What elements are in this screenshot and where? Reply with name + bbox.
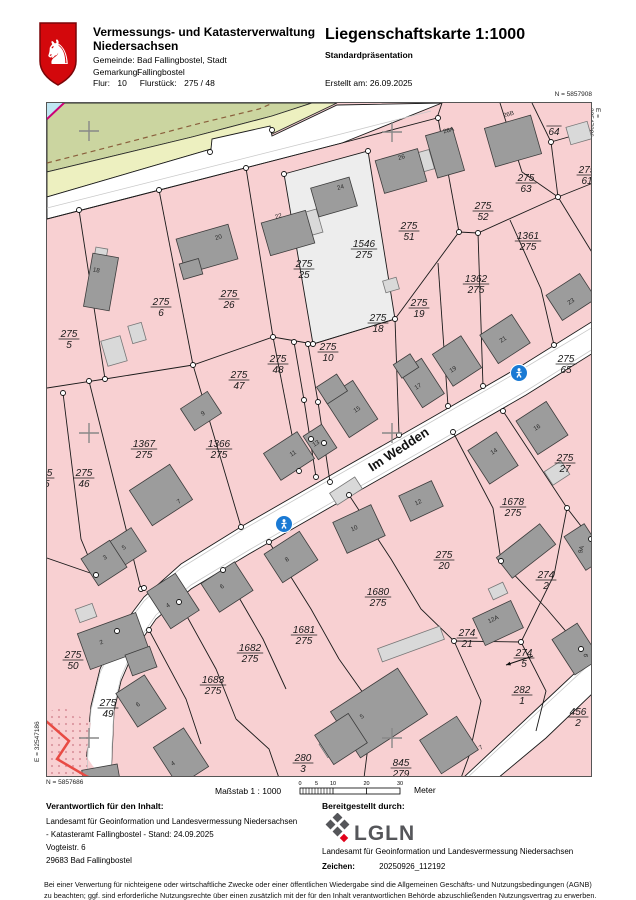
boundary-point bbox=[77, 208, 82, 213]
svg-text:274: 274 bbox=[537, 570, 555, 581]
boundary-point bbox=[501, 409, 506, 414]
scale-text: Maßstab 1 : 1000 bbox=[215, 786, 281, 796]
svg-text:275: 275 bbox=[474, 201, 492, 212]
svg-text:♞: ♞ bbox=[43, 33, 73, 73]
building bbox=[84, 253, 119, 311]
svg-text:275: 275 bbox=[152, 297, 170, 308]
parcel-label: 1361275 bbox=[515, 231, 541, 253]
boundary-point bbox=[393, 317, 398, 322]
map-canvas: 2755275627526275251546275275512755227563… bbox=[47, 103, 592, 777]
parcel-label: 845279 bbox=[391, 758, 412, 777]
boundary-point bbox=[302, 398, 307, 403]
parcel-label: 2803 bbox=[293, 753, 314, 775]
boundary-point bbox=[147, 628, 152, 633]
boundary-point bbox=[556, 195, 561, 200]
parcel-label: 1362275 bbox=[463, 274, 489, 296]
parcel-label: 2742 bbox=[536, 570, 557, 592]
svg-text:51: 51 bbox=[403, 232, 414, 243]
svg-text:275: 275 bbox=[220, 289, 238, 300]
svg-text:275: 275 bbox=[557, 354, 575, 365]
svg-text:19: 19 bbox=[413, 309, 425, 320]
boundary-point bbox=[177, 600, 182, 605]
boundary-point bbox=[322, 441, 327, 446]
svg-text:275: 275 bbox=[295, 259, 313, 270]
building bbox=[129, 464, 192, 525]
boundary-point bbox=[87, 379, 92, 384]
svg-text:275: 275 bbox=[369, 598, 387, 609]
svg-text:26: 26 bbox=[222, 300, 235, 311]
svg-text:10: 10 bbox=[322, 353, 334, 364]
provided-by-heading: Bereitgestellt durch: bbox=[322, 801, 405, 811]
svg-text:275: 275 bbox=[230, 370, 248, 381]
parcel-label: 27552 bbox=[473, 201, 494, 223]
svg-text:20: 20 bbox=[363, 781, 369, 787]
parcel-boundary bbox=[246, 168, 273, 337]
provider-line: Landesamt für Geoinformation und Landesv… bbox=[322, 845, 573, 858]
svg-text:18: 18 bbox=[372, 324, 384, 335]
svg-text:275: 275 bbox=[556, 453, 574, 464]
svg-text:30: 30 bbox=[397, 781, 403, 787]
svg-text:275: 275 bbox=[210, 450, 228, 461]
building bbox=[473, 601, 524, 646]
parcel-label: 27526 bbox=[219, 289, 240, 311]
boundary-point bbox=[157, 188, 162, 193]
boundary-point bbox=[270, 128, 275, 133]
coord-n-top: N = 5857908 bbox=[555, 91, 592, 98]
svg-text:275: 275 bbox=[355, 250, 373, 261]
svg-text:280: 280 bbox=[294, 753, 312, 764]
svg-text:65: 65 bbox=[560, 365, 572, 376]
boundary-point bbox=[297, 469, 302, 474]
building bbox=[153, 728, 208, 777]
zeichen-row: Zeichen: 20250926_112192 bbox=[322, 860, 445, 873]
svg-text:1362: 1362 bbox=[465, 274, 488, 285]
flur-label: Flur: bbox=[93, 78, 115, 90]
gemarkung-value: Fallingbostel bbox=[137, 67, 185, 77]
boundary-point bbox=[476, 231, 481, 236]
parcel-label: 27510 bbox=[318, 342, 339, 364]
scale-bar-graphic: 05102030 bbox=[296, 778, 411, 798]
svg-text:275: 275 bbox=[241, 654, 259, 665]
building bbox=[552, 623, 592, 675]
parcel-label: 2756 bbox=[151, 297, 172, 319]
building bbox=[420, 716, 479, 774]
svg-text:45: 45 bbox=[47, 479, 50, 490]
parcel-label: 27551 bbox=[399, 221, 420, 243]
building bbox=[484, 115, 541, 167]
parcel-label: 27421 bbox=[457, 628, 478, 650]
svg-text:20: 20 bbox=[437, 561, 450, 572]
boundary-point bbox=[328, 480, 333, 485]
parcel-label: 27561 bbox=[577, 165, 592, 187]
parcel-boundary bbox=[308, 344, 330, 482]
svg-text:274: 274 bbox=[458, 628, 476, 639]
svg-text:52: 52 bbox=[477, 212, 489, 223]
zeichen-label: Zeichen: bbox=[322, 862, 355, 871]
parcel-label: 1367275 bbox=[131, 439, 157, 461]
parcel-label: 1681275 bbox=[291, 625, 317, 647]
liegenschaftskarte-page: ♞ Vermessungs- und Katasterverwaltung Ni… bbox=[0, 0, 636, 900]
lgln-wordmark: LGLN bbox=[354, 822, 415, 846]
coord-e-left: E = 32547186 bbox=[34, 721, 41, 762]
boundary-point bbox=[452, 639, 457, 644]
boundary-point bbox=[94, 573, 99, 578]
svg-text:1361: 1361 bbox=[517, 231, 539, 242]
svg-text:27: 27 bbox=[558, 464, 571, 475]
parcel-label: 27519 bbox=[409, 298, 430, 320]
boundary-point bbox=[191, 363, 196, 368]
boundary-point bbox=[519, 640, 524, 645]
flurstueck-label: Flurstück: bbox=[140, 78, 182, 90]
usage-disclaimer: Bei einer Verwertung für nichteigene ode… bbox=[44, 879, 600, 900]
responsible-heading: Verantwortlich für den Inhalt: bbox=[46, 801, 164, 811]
parcel-boundary bbox=[149, 630, 201, 744]
responsible-lines: Landesamt für Geoinformation und Landesv… bbox=[46, 815, 297, 867]
boundary-point bbox=[306, 342, 311, 347]
svg-text:1367: 1367 bbox=[133, 439, 156, 450]
svg-text:48: 48 bbox=[272, 365, 284, 376]
boundary-point bbox=[314, 475, 319, 480]
boundary-point bbox=[552, 343, 557, 348]
svg-text:1366: 1366 bbox=[208, 439, 231, 450]
svg-text:1546: 1546 bbox=[353, 239, 376, 250]
svg-text:275: 275 bbox=[319, 342, 337, 353]
pedestrian-sign-icon bbox=[276, 516, 293, 533]
flur-value: 10 bbox=[117, 78, 137, 90]
parcel-label: 27545 bbox=[47, 468, 54, 490]
building bbox=[333, 505, 385, 554]
boundary-point bbox=[347, 493, 352, 498]
svg-text:49: 49 bbox=[102, 709, 114, 720]
parcel-label: 27548 bbox=[268, 354, 289, 376]
house-number: 26B bbox=[502, 110, 515, 120]
pedestrian-sign-icon bbox=[511, 365, 528, 382]
svg-text:275: 275 bbox=[517, 173, 535, 184]
boundary-point bbox=[579, 647, 584, 652]
parcel-boundary bbox=[438, 263, 448, 406]
boundary-point bbox=[61, 391, 66, 396]
svg-text:2: 2 bbox=[574, 718, 581, 729]
svg-text:275: 275 bbox=[467, 285, 485, 296]
gemarkung-label: Gemarkung: bbox=[93, 67, 137, 79]
parcel-label: 27520 bbox=[434, 550, 455, 572]
zeichen-value: 20250926_112192 bbox=[379, 862, 445, 871]
parcel-label: 64 bbox=[546, 126, 561, 138]
svg-text:64: 64 bbox=[548, 127, 560, 138]
svg-text:275: 275 bbox=[504, 508, 522, 519]
svg-text:275: 275 bbox=[578, 165, 592, 176]
svg-text:845: 845 bbox=[393, 758, 410, 769]
niedersachsen-coat-of-arms: ♞ bbox=[39, 22, 77, 91]
svg-text:50: 50 bbox=[67, 661, 79, 672]
svg-text:275: 275 bbox=[410, 298, 428, 309]
svg-text:1: 1 bbox=[519, 696, 525, 707]
created-date: Erstellt am: 26.09.2025 bbox=[325, 78, 412, 88]
boundary-point bbox=[457, 230, 462, 235]
svg-text:25: 25 bbox=[297, 270, 310, 281]
parcel-label: 27563 bbox=[516, 173, 537, 195]
svg-text:5: 5 bbox=[521, 659, 527, 670]
svg-text:46: 46 bbox=[78, 479, 90, 490]
parcel-label: 27550 bbox=[63, 650, 84, 672]
cadastral-map: 2755275627526275251546275275512755227563… bbox=[46, 102, 592, 777]
parcel-label: 1366275 bbox=[206, 439, 232, 461]
parcel-label: 27547 bbox=[229, 370, 250, 392]
svg-text:1680: 1680 bbox=[367, 587, 390, 598]
coord-n-bottom: N = 5857686 bbox=[46, 779, 83, 786]
boundary-point bbox=[244, 166, 249, 171]
svg-text:0: 0 bbox=[298, 781, 301, 787]
parcel-label: 1683275 bbox=[200, 675, 226, 697]
svg-text:275: 275 bbox=[519, 242, 537, 253]
svg-text:63: 63 bbox=[520, 184, 532, 195]
building bbox=[101, 336, 127, 367]
label-arrowhead bbox=[506, 662, 511, 666]
flurstueck-value: 275 / 48 bbox=[184, 78, 215, 88]
boundary-point bbox=[221, 568, 226, 573]
svg-text:1681: 1681 bbox=[293, 625, 315, 636]
parcel-label: 4562 bbox=[568, 707, 589, 729]
boundary-point bbox=[267, 540, 272, 545]
boundary-point bbox=[499, 559, 504, 564]
svg-text:47: 47 bbox=[233, 381, 245, 392]
building bbox=[425, 128, 464, 178]
svg-text:275: 275 bbox=[295, 636, 313, 647]
parcel-label: 2821 bbox=[512, 685, 533, 707]
scale-unit: Meter bbox=[414, 785, 436, 795]
boundary-point bbox=[565, 506, 570, 511]
svg-text:275: 275 bbox=[60, 329, 78, 340]
building bbox=[128, 322, 146, 343]
building bbox=[566, 121, 592, 144]
svg-text:456: 456 bbox=[570, 707, 587, 718]
map-title: Liegenschaftskarte 1:1000 bbox=[325, 26, 525, 44]
parcel-label: 2755 bbox=[59, 329, 80, 351]
svg-text:1678: 1678 bbox=[502, 497, 525, 508]
grid-cross bbox=[79, 423, 99, 443]
boundary-point bbox=[208, 150, 213, 155]
building bbox=[432, 336, 481, 386]
building bbox=[116, 675, 166, 727]
building bbox=[546, 274, 592, 321]
house-number: 7 bbox=[478, 744, 485, 752]
svg-text:5: 5 bbox=[66, 340, 72, 351]
boundary-point bbox=[311, 342, 316, 347]
building bbox=[516, 401, 568, 454]
boundary-point bbox=[436, 116, 441, 121]
parcel-label: 1678275 bbox=[500, 497, 526, 519]
svg-text:61: 61 bbox=[581, 176, 592, 187]
building bbox=[468, 432, 518, 484]
svg-text:10: 10 bbox=[330, 781, 336, 787]
building bbox=[378, 626, 445, 662]
boundary-point bbox=[239, 525, 244, 530]
svg-text:275: 275 bbox=[269, 354, 287, 365]
boundary-point bbox=[481, 384, 486, 389]
scale-bar: 05102030 bbox=[296, 778, 411, 803]
svg-text:3: 3 bbox=[300, 764, 306, 775]
svg-text:275: 275 bbox=[75, 468, 93, 479]
svg-text:275: 275 bbox=[400, 221, 418, 232]
parcel-boundary bbox=[236, 719, 279, 777]
svg-text:275: 275 bbox=[64, 650, 82, 661]
parcel-boundary bbox=[395, 319, 399, 435]
svg-text:6: 6 bbox=[158, 308, 164, 319]
boundary-point bbox=[366, 149, 371, 154]
svg-text:275: 275 bbox=[135, 450, 153, 461]
agency-title: Vermessungs- und Katasterverwaltung Nied… bbox=[93, 25, 315, 53]
boundary-point bbox=[282, 172, 287, 177]
svg-text:275: 275 bbox=[47, 468, 53, 479]
boundary-point bbox=[589, 537, 593, 542]
boundary-point bbox=[115, 629, 120, 634]
boundary-point bbox=[316, 400, 321, 405]
boundary-point bbox=[103, 377, 108, 382]
boundary-point bbox=[451, 430, 456, 435]
parcel-label: 27546 bbox=[74, 468, 95, 490]
boundary-point bbox=[271, 335, 276, 340]
svg-text:1682: 1682 bbox=[239, 643, 262, 654]
parcel-label: 1680275 bbox=[365, 587, 391, 609]
boundary-point bbox=[446, 404, 451, 409]
svg-text:282: 282 bbox=[513, 685, 531, 696]
parcel-boundary bbox=[558, 197, 592, 254]
svg-text:275: 275 bbox=[204, 686, 222, 697]
svg-text:275: 275 bbox=[99, 698, 117, 709]
parcel-boundary bbox=[551, 142, 558, 197]
gemeinde-value: Bad Fallingbostel, Stadt bbox=[137, 55, 227, 65]
parcel-boundary bbox=[179, 602, 236, 719]
svg-text:5: 5 bbox=[315, 781, 318, 787]
boundary-point bbox=[292, 340, 297, 345]
svg-text:21: 21 bbox=[460, 639, 472, 650]
svg-text:1683: 1683 bbox=[202, 675, 225, 686]
boundary-point bbox=[549, 140, 554, 145]
building bbox=[75, 603, 97, 622]
building bbox=[488, 582, 508, 600]
gemeinde-label: Gemeinde: bbox=[93, 55, 137, 67]
boundary-point bbox=[142, 586, 147, 591]
parcel-meta: Gemeinde:Bad Fallingbostel, Stadt Gemark… bbox=[93, 55, 227, 90]
svg-text:279: 279 bbox=[392, 769, 410, 777]
map-subtitle: Standardpräsentation bbox=[325, 50, 413, 60]
svg-text:275: 275 bbox=[435, 550, 453, 561]
parcel-label: 1682275 bbox=[237, 643, 263, 665]
svg-text:275: 275 bbox=[369, 313, 387, 324]
svg-text:2: 2 bbox=[542, 581, 549, 592]
